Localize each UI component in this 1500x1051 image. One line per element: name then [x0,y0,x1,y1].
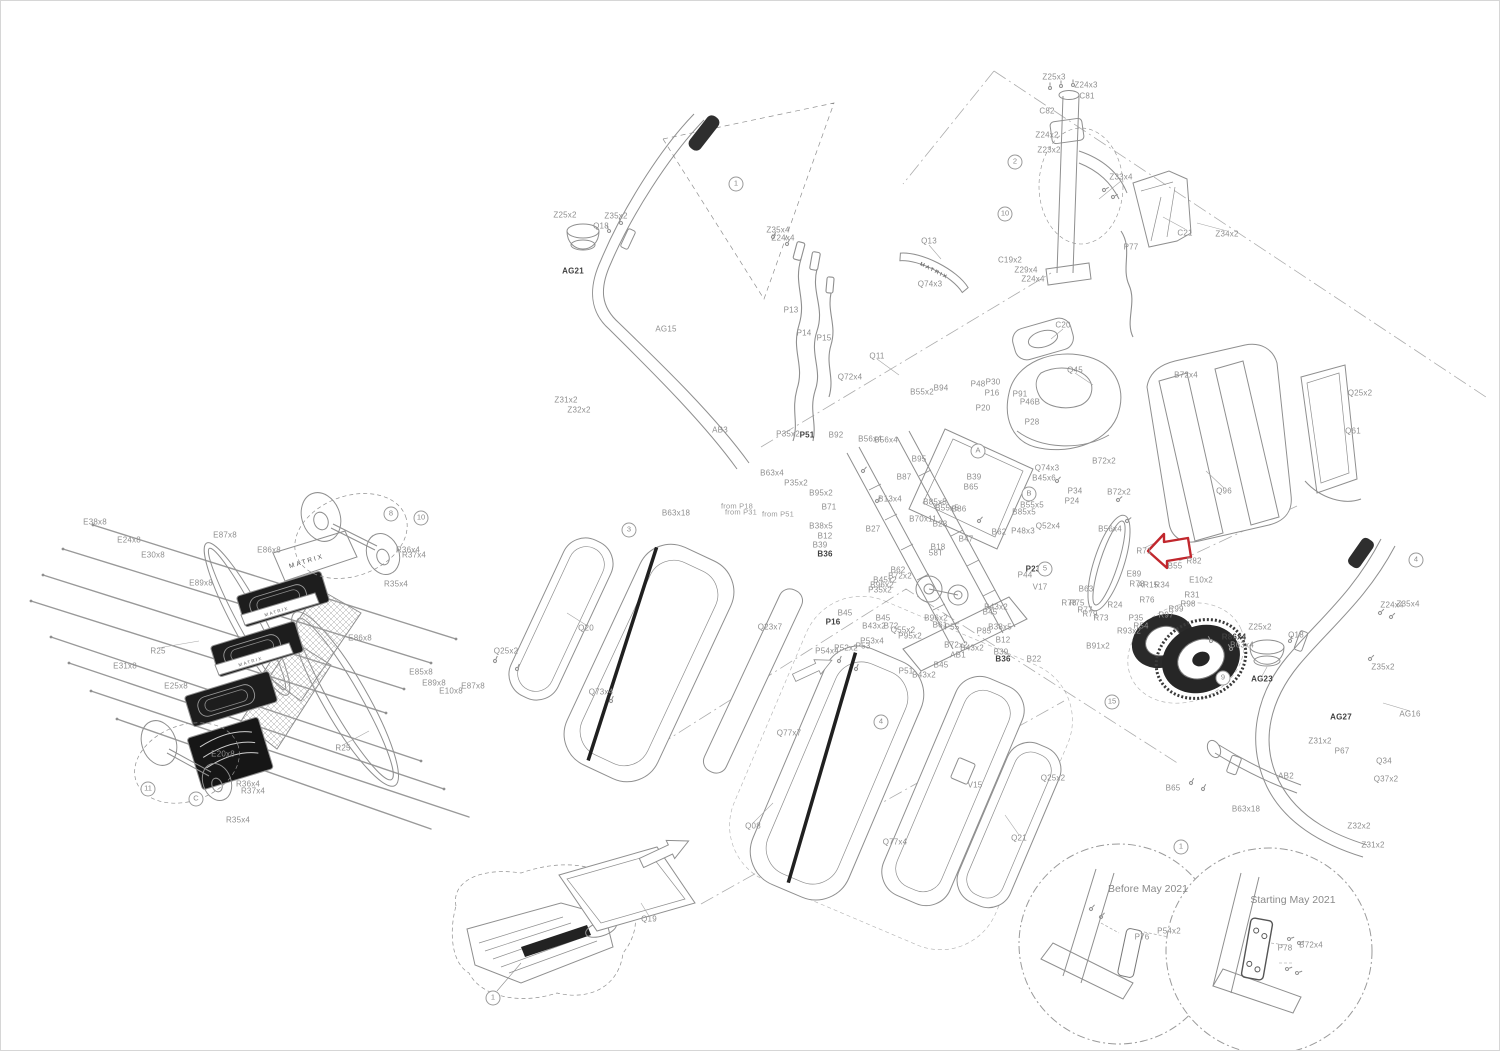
balloon-marker: 3 [622,523,637,538]
balloon-marker: 4 [1409,553,1424,568]
balloon-marker: 2 [1008,155,1023,170]
balloon-marker: 4 [874,715,889,730]
balloon-marker: C [189,792,204,807]
balloon-marker: 1 [486,991,501,1006]
balloon-marker: 10 [998,207,1013,222]
exploded-parts-diagram: MATRIX MATRIX MATRIX [0,0,1500,1051]
balloon-marker: 11 [141,782,156,797]
markers-layer: 121081011C3445AB15911 [1,1,1499,1050]
balloon-marker: 5 [1038,562,1053,577]
balloon-marker: 15 [1105,695,1120,710]
balloon-marker: A [971,444,986,459]
balloon-marker: 1 [1174,840,1189,855]
balloon-marker: 10 [414,511,429,526]
balloon-marker: 9 [1216,671,1231,686]
balloon-marker: 1 [729,177,744,192]
balloon-marker: 8 [384,507,399,522]
balloon-marker: B [1022,487,1037,502]
